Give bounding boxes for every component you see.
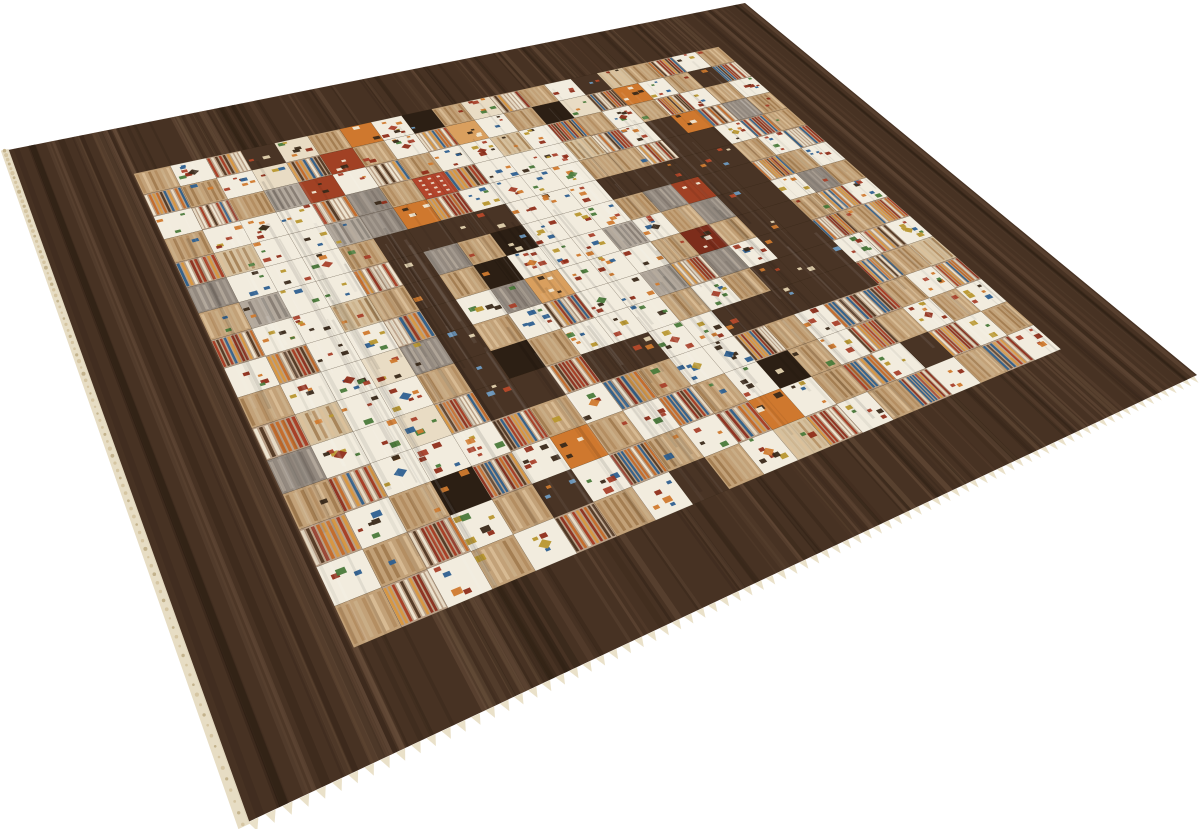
rug-photo xyxy=(0,0,1200,829)
photo-canvas xyxy=(0,0,1200,829)
